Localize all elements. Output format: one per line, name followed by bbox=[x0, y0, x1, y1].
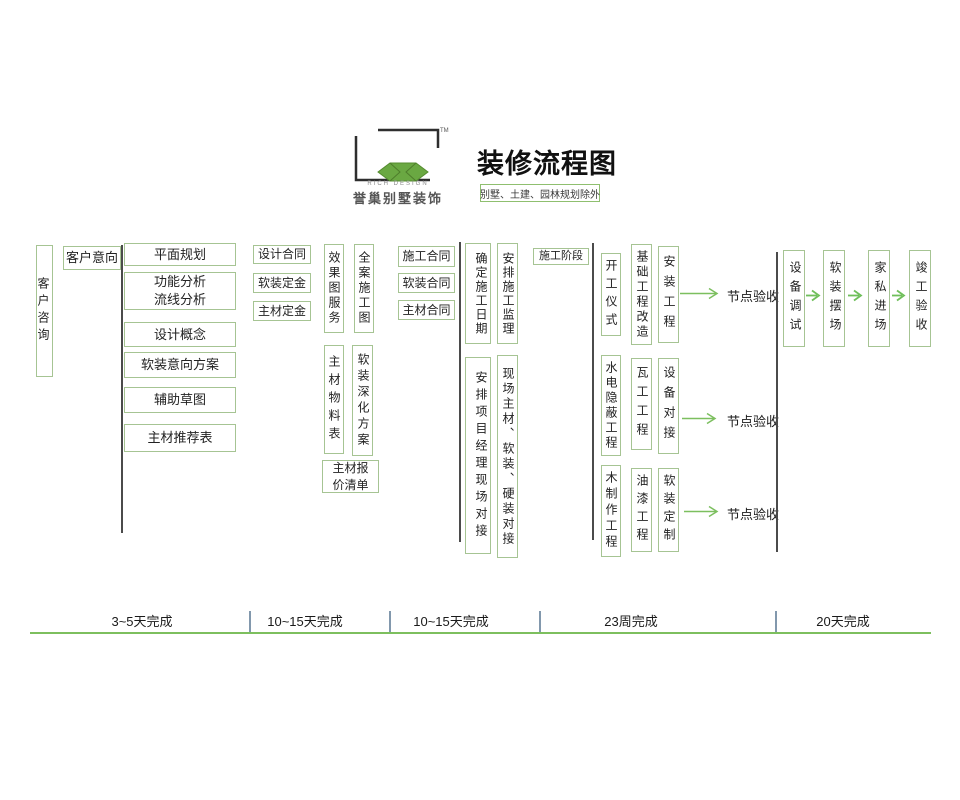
design-contract-box: 软装定金 bbox=[253, 273, 311, 293]
construction-box: 木制作工程 bbox=[601, 465, 621, 557]
construction-box: 开工仪式 bbox=[601, 253, 621, 336]
final-step-box: 软装摆场 bbox=[823, 250, 845, 347]
construction-box: 水电隐蔽工程 bbox=[601, 355, 621, 456]
node-acceptance-label: 节点验收 bbox=[727, 286, 779, 305]
construction-box: 基础工程改造 bbox=[631, 244, 652, 345]
construction-contract-box: 施工合同 bbox=[398, 246, 455, 267]
final-step-box: 设备调试 bbox=[783, 250, 805, 347]
timeline-tick bbox=[389, 611, 391, 632]
timeline-label: 10~15天完成 bbox=[413, 611, 489, 630]
node-acceptance-label: 节点验收 bbox=[727, 504, 779, 523]
divider-line-3 bbox=[592, 243, 594, 540]
customer-intent-box: 客户意向 bbox=[63, 246, 121, 270]
timeline-label: 10~15天完成 bbox=[267, 611, 343, 630]
design-contract-box: 设计合同 bbox=[253, 245, 311, 264]
design-step-box: 设计概念 bbox=[124, 322, 236, 347]
render-service-box: 效果图服务 bbox=[324, 244, 344, 333]
construction-stage-box: 施工阶段 bbox=[533, 248, 589, 265]
timeline-line bbox=[30, 632, 931, 634]
timeline-label: 20天完成 bbox=[816, 611, 869, 630]
timeline-tick bbox=[775, 611, 777, 632]
pm-onsite-box: 安排项目经理现场对接 bbox=[465, 357, 491, 554]
design-step-box: 软装意向方案 bbox=[124, 352, 236, 378]
brand-name-en: RICH DESIGN bbox=[350, 181, 446, 187]
arrow-right-icon bbox=[806, 289, 822, 302]
node-acceptance-label: 节点验收 bbox=[727, 411, 779, 430]
customer-consultation-box: 客户咨询 bbox=[36, 245, 53, 377]
design-step-box: 辅助草图 bbox=[124, 387, 236, 413]
construction-box: 设备对接 bbox=[658, 358, 679, 454]
timeline-tick bbox=[249, 611, 251, 632]
timeline-label: 3~5天完成 bbox=[111, 611, 172, 630]
company-logo-icon bbox=[350, 126, 446, 184]
schedule-box: 确定施工日期 bbox=[465, 243, 491, 344]
arrow-right-icon bbox=[683, 505, 725, 518]
design-step-box: 平面规划 bbox=[124, 243, 236, 266]
design-step-box: 主材推荐表 bbox=[124, 424, 236, 452]
brand-name-cn: 誉巢别墅装饰 bbox=[346, 188, 450, 207]
arrow-right-icon bbox=[681, 412, 723, 425]
onsite-docking-box: 现场主材、软装、硬装对接 bbox=[497, 355, 518, 558]
supervisor-box: 安排施工监理 bbox=[497, 243, 518, 344]
page-title: 装修流程图 bbox=[477, 142, 617, 181]
construction-box: 安装工程 bbox=[658, 246, 679, 343]
trademark-symbol: TM bbox=[440, 128, 449, 134]
timeline-label: 23周完成 bbox=[604, 611, 657, 630]
divider-line-1 bbox=[121, 245, 123, 533]
design-contract-box: 主材定金 bbox=[253, 301, 311, 321]
construction-box: 瓦工工程 bbox=[631, 358, 652, 450]
timeline-tick bbox=[539, 611, 541, 632]
material-list-box: 主材物料表 bbox=[324, 345, 344, 454]
page-subtitle: 别墅、土建、园林规划除外 bbox=[480, 184, 600, 202]
arrow-right-icon bbox=[679, 287, 725, 300]
final-step-box: 家私进场 bbox=[868, 250, 890, 347]
arrow-right-icon bbox=[848, 289, 864, 302]
construction-contract-box: 软装合同 bbox=[398, 273, 455, 293]
divider-line-2 bbox=[459, 242, 461, 542]
final-step-box: 竣工验收 bbox=[909, 250, 931, 347]
design-step-box: 功能分析 流线分析 bbox=[124, 272, 236, 310]
flowchart-canvas: TM RICH DESIGN 誉巢别墅装饰 装修流程图 别墅、土建、园林规划除外… bbox=[0, 0, 960, 800]
material-quote-box: 主材报 价清单 bbox=[322, 460, 379, 493]
arrow-right-icon bbox=[892, 289, 907, 302]
divider-line-4 bbox=[776, 252, 778, 552]
construction-box: 油漆工程 bbox=[631, 468, 652, 552]
construction-box: 软装定制 bbox=[658, 468, 679, 552]
construction-contract-box: 主材合同 bbox=[398, 300, 455, 320]
construction-drawing-box: 全案施工图 bbox=[354, 244, 374, 333]
soft-deco-deepen-box: 软装深化方案 bbox=[352, 345, 373, 456]
